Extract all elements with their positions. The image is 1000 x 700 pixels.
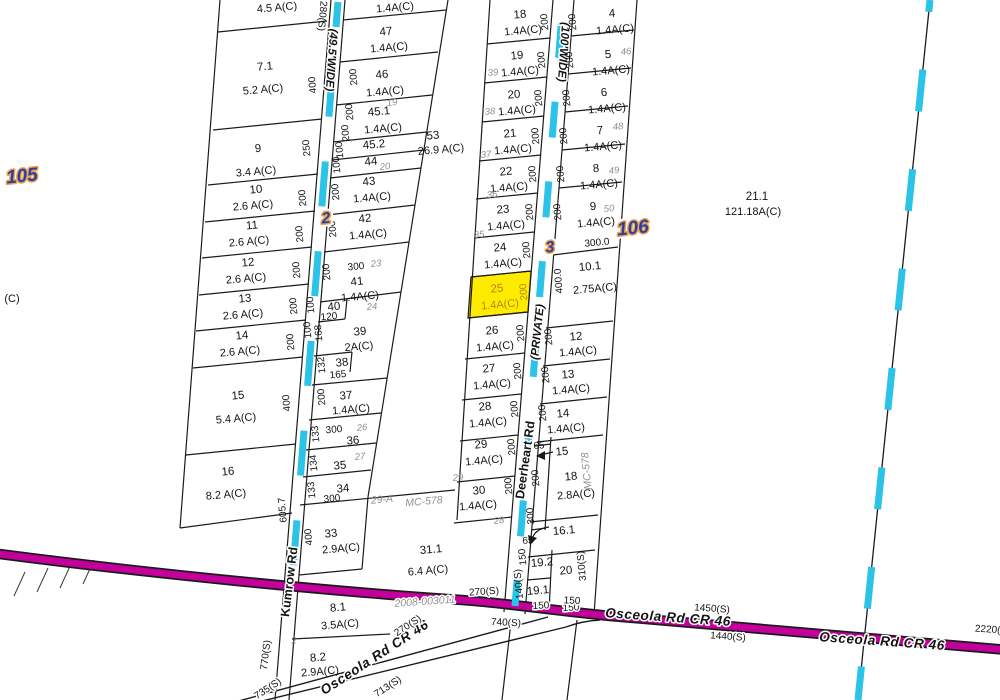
map-label: 8.1 bbox=[330, 601, 347, 614]
map-label: 200 bbox=[291, 261, 303, 279]
map-label: 300 bbox=[323, 493, 341, 505]
map-label: 12 bbox=[569, 330, 583, 343]
map-label: 200 bbox=[503, 477, 515, 495]
map-label: 26 bbox=[485, 324, 499, 337]
map-label: 740(S) bbox=[491, 617, 522, 630]
map-label: 8.2 bbox=[310, 651, 327, 664]
parcel-map-view: 4.5 A(C)7.15.2 A(C)93.4 A(C)102.6 A(C)11… bbox=[0, 0, 1000, 700]
map-label: 9 bbox=[254, 143, 261, 156]
map-label: 43 bbox=[362, 175, 376, 188]
map-label: 15 bbox=[555, 445, 569, 458]
map-label: 200 bbox=[552, 203, 564, 221]
map-label: 200 bbox=[297, 189, 309, 207]
map-label: 47 bbox=[379, 25, 393, 38]
map-label: 38 bbox=[484, 106, 496, 118]
map-label: 46 bbox=[375, 68, 389, 81]
map-label: 35 bbox=[333, 459, 347, 472]
map-label: 200 bbox=[340, 124, 352, 142]
map-label: 168 bbox=[313, 324, 325, 342]
map-label: 200 bbox=[285, 333, 297, 351]
map-label: 65 bbox=[533, 440, 545, 452]
map-label: 33 bbox=[324, 527, 338, 540]
map-label: 14 bbox=[556, 407, 570, 420]
map-label: 29-A bbox=[369, 493, 393, 507]
map-label: 6 bbox=[600, 87, 607, 100]
map-label: 41 bbox=[350, 275, 364, 288]
section-marker: 105 bbox=[5, 164, 39, 188]
map-label: 25 bbox=[490, 282, 504, 295]
map-label: 36 bbox=[346, 434, 360, 447]
map-label: 65 bbox=[522, 535, 534, 547]
map-label: 200 bbox=[524, 203, 536, 221]
map-label: 21 bbox=[503, 127, 517, 140]
map-label: 200 bbox=[521, 241, 533, 259]
map-label: 39 bbox=[353, 325, 367, 338]
map-label: 24 bbox=[493, 241, 507, 254]
map-label: 44 bbox=[364, 155, 378, 168]
map-label: 36 bbox=[486, 189, 498, 201]
map-label: 200 bbox=[288, 297, 300, 315]
map-label: 11 bbox=[246, 220, 259, 233]
map-label: 18 bbox=[513, 8, 527, 21]
map-label: 150 bbox=[532, 600, 550, 612]
map-label: 121.18A(C) bbox=[725, 206, 781, 218]
map-label: 200 bbox=[294, 225, 306, 243]
map-label: 300 bbox=[525, 507, 537, 525]
map-label: 14 bbox=[235, 329, 249, 342]
map-label: 30 bbox=[472, 484, 486, 497]
map-label: 200 bbox=[518, 283, 530, 301]
map-label: 10.1 bbox=[578, 260, 601, 274]
map-label: 200 bbox=[512, 362, 524, 380]
map-label: 200 bbox=[527, 165, 539, 183]
map-label: 200 bbox=[515, 324, 527, 342]
map-label: 19.1 bbox=[526, 584, 549, 598]
map-label: 5 bbox=[604, 49, 611, 62]
section-marker: 3 bbox=[545, 239, 556, 257]
map-label: 200 bbox=[540, 366, 552, 384]
map-label: 400 bbox=[281, 394, 293, 412]
map-label: 605.7 bbox=[277, 497, 290, 523]
map-label: 23 bbox=[369, 258, 382, 270]
map-label: 200 bbox=[561, 89, 573, 107]
map-label: 37 bbox=[480, 149, 492, 161]
map-label: 400 bbox=[307, 76, 319, 94]
map-label: 165 bbox=[329, 369, 347, 381]
map-label: 200 bbox=[537, 404, 549, 422]
map-label: 200 bbox=[543, 328, 555, 346]
map-label: 19 bbox=[510, 49, 524, 62]
map-label: 200 bbox=[564, 51, 576, 69]
map-label: 200 bbox=[539, 13, 551, 31]
map-label: 7.1 bbox=[257, 60, 274, 73]
map-label: 300 bbox=[347, 261, 365, 273]
parcel-map-canvas: 4.5 A(C)7.15.2 A(C)93.4 A(C)102.6 A(C)11… bbox=[0, 0, 1000, 700]
map-label: 42 bbox=[358, 212, 372, 225]
map-label: 200 bbox=[530, 127, 542, 145]
map-label: 200 bbox=[316, 388, 328, 406]
map-label: 133 bbox=[310, 425, 322, 443]
section-marker: 106 bbox=[616, 216, 650, 240]
map-label: 200 bbox=[533, 89, 545, 107]
map-label: 100 bbox=[305, 296, 317, 314]
map-label: 39 bbox=[487, 67, 499, 79]
map-label: 300 bbox=[325, 424, 343, 436]
map-label: 18 bbox=[564, 470, 578, 483]
map-label: 12 bbox=[241, 256, 255, 269]
map-label: 21.1 bbox=[746, 191, 768, 203]
map-label: 400 bbox=[303, 528, 315, 546]
map-label: 13 bbox=[561, 368, 575, 381]
map-label: 133 bbox=[306, 481, 318, 499]
map-label: 53 bbox=[426, 129, 440, 142]
map-label: 400.0 bbox=[553, 268, 566, 294]
map-label: 200 bbox=[555, 165, 567, 183]
map-label: 26 bbox=[355, 422, 368, 434]
map-label: (C) bbox=[4, 293, 19, 305]
map-label: 20 bbox=[559, 564, 573, 577]
map-label: 48 bbox=[612, 121, 624, 133]
map-label: 23 bbox=[496, 203, 510, 216]
map-label: 150 bbox=[563, 595, 581, 607]
map-label: 200 bbox=[567, 13, 579, 31]
map-label: 100 bbox=[334, 141, 346, 159]
map-label: 300.0 bbox=[584, 237, 610, 250]
map-label: 35 bbox=[473, 229, 485, 241]
map-label: 49 bbox=[608, 165, 620, 177]
map-label: 8 bbox=[592, 163, 599, 176]
map-label: 200 bbox=[506, 438, 518, 456]
map-label: 29 bbox=[451, 472, 464, 484]
map-label: 46 bbox=[620, 46, 632, 58]
map-label: 200 bbox=[330, 183, 342, 201]
map-label: 200 bbox=[348, 68, 360, 86]
map-label: 28 bbox=[492, 515, 505, 527]
map-label: 24 bbox=[365, 301, 377, 313]
map-label: 38 bbox=[335, 356, 349, 369]
map-label: 27 bbox=[353, 451, 366, 463]
map-label: 2A(C) bbox=[344, 340, 374, 354]
map-label: 120 bbox=[320, 311, 338, 323]
map-label: 16 bbox=[221, 465, 235, 478]
map-label: 7 bbox=[596, 125, 603, 138]
map-label: 150 bbox=[517, 548, 529, 566]
map-label: 13 bbox=[238, 292, 252, 305]
map-label: 27 bbox=[482, 362, 496, 375]
map-label: 200 bbox=[344, 103, 356, 121]
section-marker: 2 bbox=[320, 210, 332, 228]
map-label: 10 bbox=[249, 183, 263, 196]
map-label: 100 bbox=[331, 156, 343, 174]
map-label: 200 bbox=[321, 263, 333, 281]
map-label: 200 bbox=[530, 469, 542, 487]
map-label: 16.1 bbox=[552, 524, 575, 538]
map-label: 19 bbox=[386, 97, 398, 109]
map-label: 31.1 bbox=[419, 543, 442, 557]
map-label: 132 bbox=[316, 356, 328, 374]
map-label: 200 bbox=[509, 400, 521, 418]
map-label: 15 bbox=[231, 389, 245, 402]
map-label: 270(S) bbox=[469, 586, 500, 599]
map-label: 9 bbox=[589, 201, 596, 214]
map-label: 200 bbox=[536, 51, 548, 69]
map-label: 50 bbox=[603, 203, 615, 215]
map-label: 134 bbox=[308, 454, 320, 472]
map-label: 200 bbox=[558, 127, 570, 145]
map-label: 20 bbox=[378, 161, 391, 173]
map-label: 20 bbox=[507, 88, 521, 101]
map-label: 19.2 bbox=[530, 556, 553, 570]
map-label: 45.2 bbox=[362, 138, 385, 152]
map-label: 250 bbox=[301, 139, 313, 157]
map-label: 37 bbox=[339, 389, 353, 402]
map-label: 29 bbox=[474, 438, 488, 451]
map-label: 22 bbox=[499, 165, 513, 178]
map-label: 28 bbox=[478, 400, 492, 413]
